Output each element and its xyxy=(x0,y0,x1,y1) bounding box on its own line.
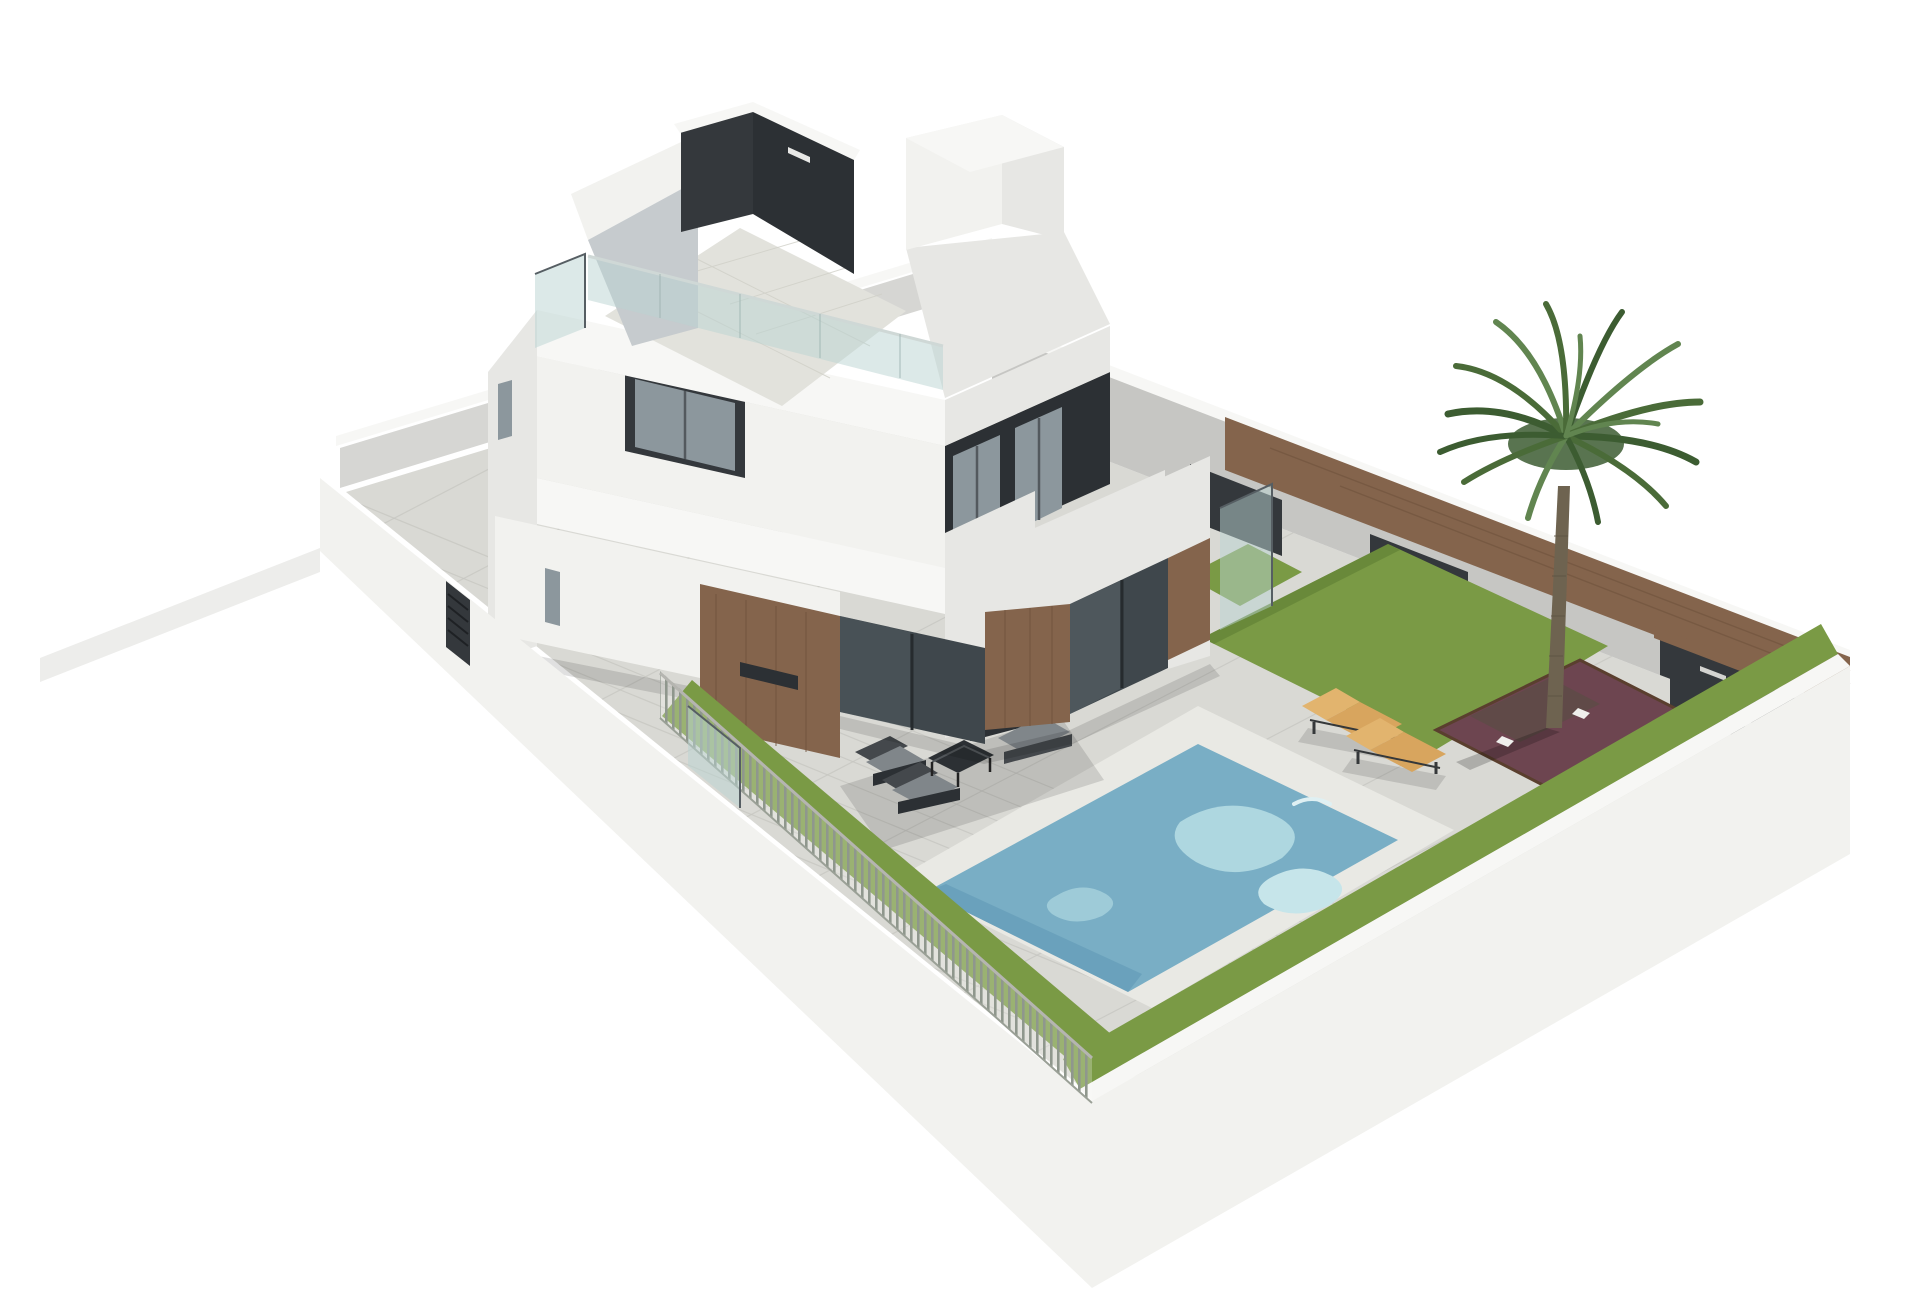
l2-west-window xyxy=(498,380,512,440)
wood-panel-right xyxy=(1168,538,1210,660)
villa-3d-render: 3D architectural rendering of a modern t… xyxy=(40,16,1920,1296)
wood-corner-pillar xyxy=(985,604,1070,730)
glass-partition xyxy=(1220,484,1272,630)
render-canvas xyxy=(40,16,1920,1296)
ground-window xyxy=(545,568,560,626)
